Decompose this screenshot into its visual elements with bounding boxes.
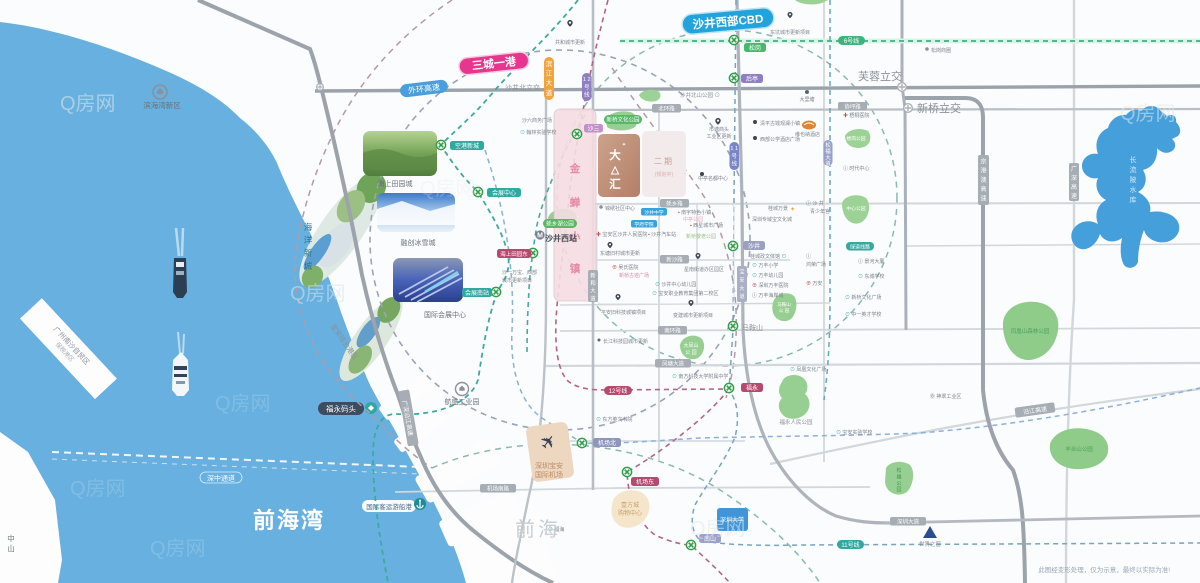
svg-text:沙六商务广场: 沙六商务广场 [522,117,552,124]
svg-text:号: 号 [731,153,737,160]
svg-text:新: 新 [590,272,596,280]
svg-text:▪ 西星城市广场: ▪ 西星城市广场 [690,222,723,229]
svg-text:Q房网: Q房网 [420,177,476,200]
svg-text:号: 号 [584,84,590,91]
svg-text:马鞍山: 马鞍山 [777,301,791,308]
svg-text:园: 园 [896,487,901,493]
svg-text:公: 公 [896,481,901,487]
svg-text:蝉: 蝉 [570,196,581,209]
svg-text:深中通道: 深中通道 [207,474,235,483]
svg-text:沙井北山公园 ⊙: 沙井北山公园 ⊙ [680,91,720,99]
svg-text:凤凰山森林公园: 凤凰山森林公园 [1011,327,1050,335]
svg-text:广: 广 [1071,165,1077,173]
svg-text:沙三: 沙三 [587,126,599,133]
svg-text:道: 道 [825,160,831,168]
svg-text:⊙ 万丰幼儿园: ⊙ 万丰幼儿园 [752,272,783,279]
svg-text:金: 金 [569,162,581,175]
svg-text:机场东: 机场东 [636,478,654,486]
svg-text:大: 大 [739,285,744,292]
svg-text:学府学院: 学府学院 [634,221,653,228]
svg-text:世界之窗: 世界之窗 [919,540,942,548]
svg-text:共和城市更新: 共和城市更新 [555,39,585,46]
svg-text:新桥敬老公园: 新桥敬老公园 [686,233,716,240]
svg-text:松岗商圈: 松岗商圈 [931,47,951,54]
svg-text:城: 城 [304,261,313,271]
svg-text:道: 道 [546,88,553,97]
svg-text:新沙路: 新沙路 [666,256,683,264]
svg-text:⊙ 宝安实验学校: ⊙ 宝安实验学校 [836,429,872,436]
svg-text:维也纳酒店: 维也纳酒店 [795,131,820,138]
svg-text:市塘商头: 市塘商头 [709,126,729,133]
svg-text:Q房网: Q房网 [60,92,116,115]
svg-text:⊕ 深圳万丰医院: ⊕ 深圳万丰医院 [752,282,788,289]
svg-text:此图经变形处理，仅为示意，最终以实际为准!: 此图经变形处理，仅为示意，最终以实际为准! [1038,565,1170,574]
svg-text:沙井: 沙井 [748,242,760,250]
svg-text:城市更新项目: 城市更新项目 [502,277,532,284]
svg-text:沙井西站: 沙井西站 [545,233,577,243]
svg-text:ⓘ: ⓘ [806,253,811,260]
svg-text:购物中心: 购物中心 [618,509,642,517]
svg-text:水: 水 [1130,185,1137,194]
svg-text:⊕ 万安: ⊕ 万安 [806,280,822,287]
svg-text:京: 京 [980,158,986,166]
svg-text:协坪路: 协坪路 [844,103,861,111]
svg-text:Q房网: Q房网 [290,282,346,305]
svg-text:深圳大道: 深圳大道 [897,518,920,526]
svg-text:福: 福 [825,147,831,155]
svg-text:南环路: 南环路 [664,327,681,335]
svg-text:大: 大 [825,153,831,161]
svg-text:福永码头: 福永码头 [326,404,356,414]
svg-text:⊙ 翰林实验学校: ⊙ 翰林实验学校 [520,129,556,136]
svg-text:清平古墟观澜小镇: 清平古墟观澜小镇 [760,120,800,127]
svg-text:东塘旧村城市更新: 东塘旧村城市更新 [600,250,640,257]
svg-text:海: 海 [304,222,313,232]
svg-text:芙蓉立交: 芙蓉立交 [858,69,902,83]
svg-text:公 园: 公 园 [685,350,696,356]
svg-text:ⓘ 万丰海岸城: ⓘ 万丰海岸城 [752,292,783,299]
svg-text:长江科技园城市更新: 长江科技园城市更新 [603,338,648,345]
svg-text:壹方城: 壹方城 [621,501,639,509]
svg-text:平安旧科技城镇项目: 平安旧科技城镇项目 [601,309,646,316]
svg-text:中亭公园: 中亭公园 [683,216,703,223]
svg-text:✚ 宝安区沙井人民医院: ✚ 宝安区沙井人民医院 [596,231,647,238]
svg-text:融创冰雪城: 融创冰雪城 [401,238,436,247]
svg-text:Q房网: Q房网 [1120,102,1176,125]
svg-text:中亭名都中心: 中亭名都中心 [698,175,728,182]
svg-text:⊙ 沙井中心幼儿园: ⊙ 沙井中心幼儿园 [655,281,696,288]
svg-text:桂城万景: 桂城万景 [768,205,788,212]
svg-text:新桥文化公园: 新桥文化公园 [606,116,640,124]
svg-text:✦: ✦ [790,206,795,213]
svg-text:Q房网: Q房网 [150,537,206,560]
svg-text:沙井中学: 沙井中学 [644,209,663,216]
svg-text:⊕ 吴氏医院: ⊕ 吴氏医院 [612,264,638,271]
svg-text:汇: 汇 [609,178,621,191]
svg-text:M: M [537,233,543,240]
svg-text:12号线: 12号线 [609,387,628,395]
svg-text:蚝乡路: 蚝乡路 [666,200,683,208]
svg-text:江: 江 [546,70,553,78]
svg-text:ⓘ 时代中心: ⓘ 时代中心 [843,165,869,172]
svg-text:锦绣社区中心: 锦绣社区中心 [605,205,635,212]
svg-text:星南街道办区园区: 星南街道办区园区 [684,266,724,273]
svg-text:鸿荣广场: 鸿荣广场 [806,261,826,268]
svg-text:Q房网: Q房网 [500,527,556,550]
svg-text:陂: 陂 [1130,175,1137,184]
svg-text:滨: 滨 [546,59,553,68]
svg-text:11号线: 11号线 [841,541,859,549]
svg-text:深圳专域宝文化城: 深圳专域宝文化城 [752,216,792,223]
svg-text:速: 速 [1071,193,1077,200]
svg-text:大: 大 [590,287,596,295]
svg-text:松: 松 [896,467,901,474]
svg-text:松岗: 松岗 [749,44,761,52]
svg-text:国际机场: 国际机场 [535,470,563,479]
svg-text:绿道线路: 绿道线路 [850,243,870,250]
svg-text:前海湾: 前海湾 [253,508,325,533]
svg-text:海上田园东: 海上田园东 [500,250,528,258]
svg-text:后亭: 后亭 [746,75,758,83]
svg-text:和: 和 [590,279,596,287]
svg-text:大: 大 [609,148,621,162]
svg-text:Q房网: Q房网 [215,392,271,415]
svg-text:高: 高 [980,185,986,193]
svg-text:高: 高 [1071,183,1077,191]
svg-text:⊙ 新桥文化广场: ⊙ 新桥文化广场 [845,294,881,301]
svg-text:楼岗公园: 楼岗公园 [846,135,865,142]
svg-text:⊙ 东方英文书院: ⊙ 东方英文书院 [596,416,632,423]
svg-text:△: △ [610,164,620,176]
svg-text:港: 港 [980,167,986,175]
svg-text:国际会展中心: 国际会展中心 [424,310,466,319]
svg-text:速: 速 [980,195,986,202]
svg-text:马鞍山: 马鞍山 [742,323,763,332]
svg-text:桂城政文体馆 ⊙: 桂城政文体馆 ⊙ [750,253,786,260]
svg-text:二期: 二期 [654,157,674,166]
svg-text:新桥古迹广场: 新桥古迹广场 [619,272,649,279]
svg-text:中心公园: 中心公园 [846,205,865,212]
svg-text:福: 福 [896,473,901,480]
svg-text:深: 深 [1071,174,1077,182]
svg-text:安: 安 [739,277,744,284]
svg-text:道: 道 [590,294,596,302]
svg-text:⊙ 中一英才学校: ⊙ 中一英才学校 [845,311,881,318]
svg-text:航盛工业园: 航盛工业园 [445,397,480,406]
svg-text:国际客运游船港: 国际客运游船港 [366,502,412,511]
svg-text:线: 线 [584,91,590,99]
svg-text:深圳宝安: 深圳宝安 [535,461,563,470]
svg-text:澳: 澳 [980,176,986,184]
svg-text:宝: 宝 [739,269,744,276]
svg-text:蚝乡湖公园: 蚝乡湖公园 [546,220,574,228]
svg-text:东坑城市更新项目: 东坑城市更新项目 [770,29,810,36]
svg-text:(规划中): (规划中) [655,171,674,178]
svg-text:⊙ 凤凰文化广场: ⊙ 凤凰文化广场 [790,366,826,373]
svg-text:1 1: 1 1 [730,146,738,152]
svg-text:大凤山: 大凤山 [683,342,698,349]
svg-text:⊙ 万丰小学: ⊙ 万丰小学 [752,262,778,269]
svg-text:机场南路: 机场南路 [487,485,510,493]
svg-text:中: 中 [7,533,15,543]
svg-text:空港新城: 空港新城 [455,142,479,150]
svg-text:大: 大 [546,78,553,87]
svg-text:变建城市更新项目: 变建城市更新项目 [673,312,713,319]
svg-text:⊙ 宝安职业教育集团第二校区: ⊙ 宝安职业教育集团第二校区 [652,290,718,297]
svg-text:6号线: 6号线 [844,37,859,45]
svg-text:Q房网: Q房网 [70,477,126,500]
svg-text:✚ 梧桐医院: ✚ 梧桐医院 [843,112,869,119]
svg-text:大里塘: 大里塘 [799,96,814,103]
svg-text:松: 松 [825,141,831,149]
svg-text:青少年宫: 青少年宫 [810,208,830,215]
svg-text:沙井北立交: 沙井北立交 [505,83,540,92]
svg-text:▪ 南宇特色小镇: ▪ 南宇特色小镇 [678,209,711,216]
svg-text:西部公学酒店广场: 西部公学酒店广场 [760,136,800,143]
svg-text:北环路: 北环路 [658,105,675,113]
svg-text:⊙ 东城学校: ⊙ 东城学校 [858,273,884,280]
svg-text:海上田园城: 海上田园城 [378,179,413,188]
svg-text:1 2: 1 2 [583,77,591,83]
svg-text:滨海湾新区: 滨海湾新区 [143,100,181,110]
svg-text:库: 库 [1130,195,1137,204]
svg-text:流: 流 [1130,165,1137,174]
svg-text:会展南站: 会展南站 [465,289,489,297]
svg-text:▪ 沙井汽车站: ▪ 沙井汽车站 [648,231,676,238]
svg-text:会展中心: 会展中心 [492,189,516,197]
svg-text:ⓘ 景河大厦: ⓘ 景河大厦 [858,258,884,265]
svg-text:Ⓑ 神翠工业区: Ⓑ 神翠工业区 [930,393,961,400]
svg-text:镇: 镇 [570,262,581,275]
svg-text:洋: 洋 [304,235,313,245]
svg-text:道: 道 [739,293,744,300]
svg-text:✦: ✦ [622,142,626,148]
svg-text:ⓘ 沙 井: ⓘ 沙 井 [806,200,824,207]
svg-text:长: 长 [1130,155,1137,164]
svg-text:⊙ 南方科技大学附属中学: ⊙ 南方科技大学附属中学 [672,373,728,380]
svg-text:线: 线 [731,160,737,168]
svg-text:山: 山 [7,543,15,553]
svg-text:新桥立交: 新桥立交 [917,101,961,115]
svg-text:工业区更新: 工业区更新 [706,133,731,140]
svg-text:福永人民公园: 福永人民公园 [779,418,813,426]
svg-text:机场北: 机场北 [598,439,616,447]
svg-text:凤塘大道: 凤塘大道 [662,360,685,368]
svg-text:福永: 福永 [746,384,758,392]
svg-text:新: 新 [304,248,313,258]
svg-text:羊台山公园: 羊台山公园 [1065,445,1093,453]
svg-text:Q房网: Q房网 [690,517,746,540]
svg-text:沙一万宝、西部: 沙一万宝、西部 [502,269,537,276]
